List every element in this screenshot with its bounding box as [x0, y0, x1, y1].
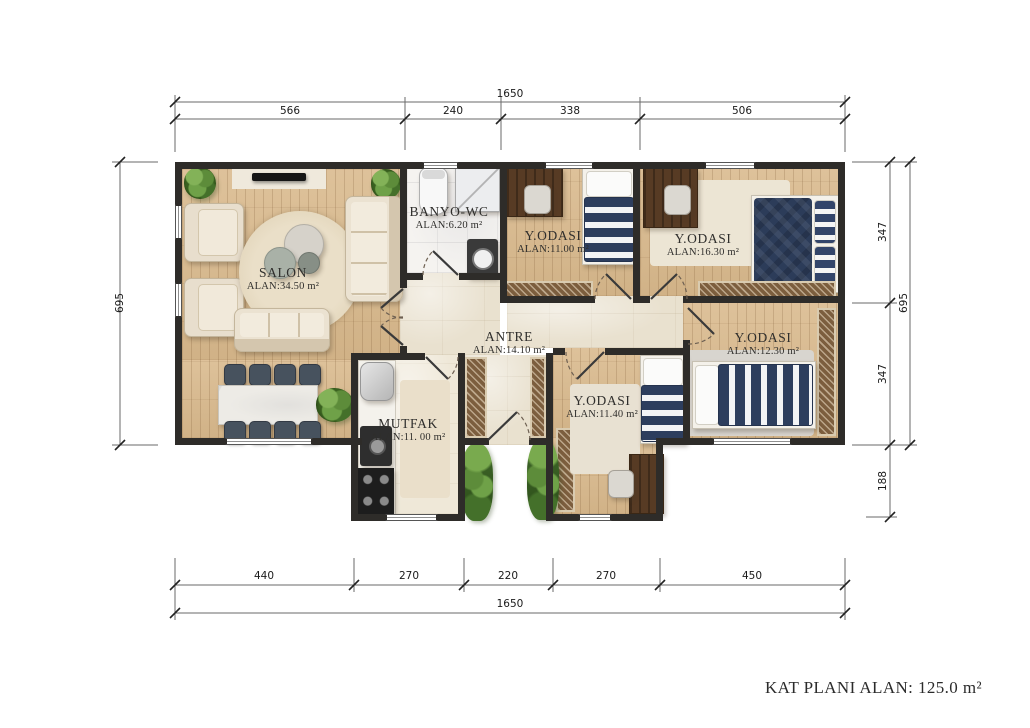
dim-right-seg-3: 188	[877, 461, 889, 501]
dim-right-total: 695	[898, 283, 910, 323]
room-label-bedroom3: Y.ODASI ALAN:12.30 m²	[713, 331, 813, 357]
room-name: SALON	[223, 266, 343, 281]
room-label-bedroom2: Y.ODASI ALAN:16.30 m²	[653, 232, 753, 258]
dimension-lines	[112, 95, 917, 620]
annotations-layer	[0, 0, 1030, 728]
dim-right-seg-1: 347	[877, 212, 889, 252]
dim-right-seg-2: 347	[877, 354, 889, 394]
room-label-antre: ANTRE ALAN:14.10 m²	[459, 330, 559, 356]
room-label-banyo: BANYO-WC ALAN:6.20 m²	[399, 205, 499, 231]
room-label-salon: SALON ALAN:34.50 m²	[223, 266, 343, 292]
room-name: Y.ODASI	[503, 229, 603, 244]
room-name: Y.ODASI	[713, 331, 813, 346]
room-area: ALAN:34.50 m²	[223, 281, 343, 293]
dim-top-total: 1650	[490, 88, 530, 100]
dim-bottom-seg-1: 440	[244, 570, 284, 582]
dim-bottom-total: 1650	[490, 598, 530, 610]
room-area: ALAN:11.40 m²	[552, 409, 652, 421]
room-name: BANYO-WC	[399, 205, 499, 220]
dim-bottom-seg-5: 450	[732, 570, 772, 582]
room-name: MUTFAK	[358, 417, 458, 432]
floor-plan-canvas: SALON ALAN:34.50 m² BANYO-WC ALAN:6.20 m…	[0, 0, 1030, 728]
room-label-bedroom4: Y.ODASI ALAN:11.40 m²	[552, 394, 652, 420]
dim-top-seg-2: 240	[433, 105, 473, 117]
room-name: Y.ODASI	[653, 232, 753, 247]
dim-bottom-seg-3: 220	[488, 570, 528, 582]
room-label-bedroom1: Y.ODASI ALAN:11.00 m²	[503, 229, 603, 255]
room-area: ALAN:11.00 m²	[503, 244, 603, 256]
dim-bottom-seg-4: 270	[586, 570, 626, 582]
room-label-mutfak: MUTFAK ALAN:11. 00 m²	[358, 417, 458, 443]
dim-top-seg-3: 338	[550, 105, 590, 117]
room-area: ALAN:6.20 m²	[399, 220, 499, 232]
room-name: ANTRE	[459, 330, 559, 345]
room-area: ALAN:14.10 m²	[459, 345, 559, 357]
room-area: ALAN:11. 00 m²	[358, 432, 458, 444]
dim-top-seg-4: 506	[722, 105, 762, 117]
dim-top-seg-1: 566	[270, 105, 310, 117]
dim-left-total: 695	[114, 283, 126, 323]
plan-total-area-text: KAT PLANI ALAN: 125.0 m²	[765, 678, 982, 698]
dimension-ticks	[115, 97, 915, 618]
room-area: ALAN:16.30 m²	[653, 247, 753, 259]
room-area: ALAN:12.30 m²	[713, 346, 813, 358]
room-name: Y.ODASI	[552, 394, 652, 409]
dim-bottom-seg-2: 270	[389, 570, 429, 582]
